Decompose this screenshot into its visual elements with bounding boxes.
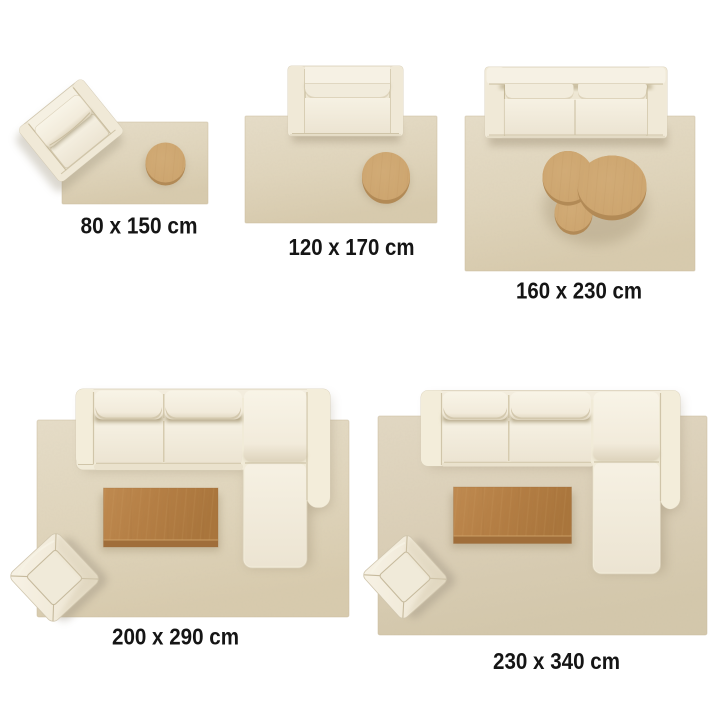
svg-text:230 x 340 cm: 230 x 340 cm [493, 648, 620, 674]
svg-text:120 x 170 cm: 120 x 170 cm [289, 234, 415, 260]
svg-text:200 x 290 cm: 200 x 290 cm [112, 624, 239, 650]
svg-text:160 x 230 cm: 160 x 230 cm [516, 278, 642, 304]
svg-text:80 x 150 cm: 80 x 150 cm [81, 213, 198, 239]
